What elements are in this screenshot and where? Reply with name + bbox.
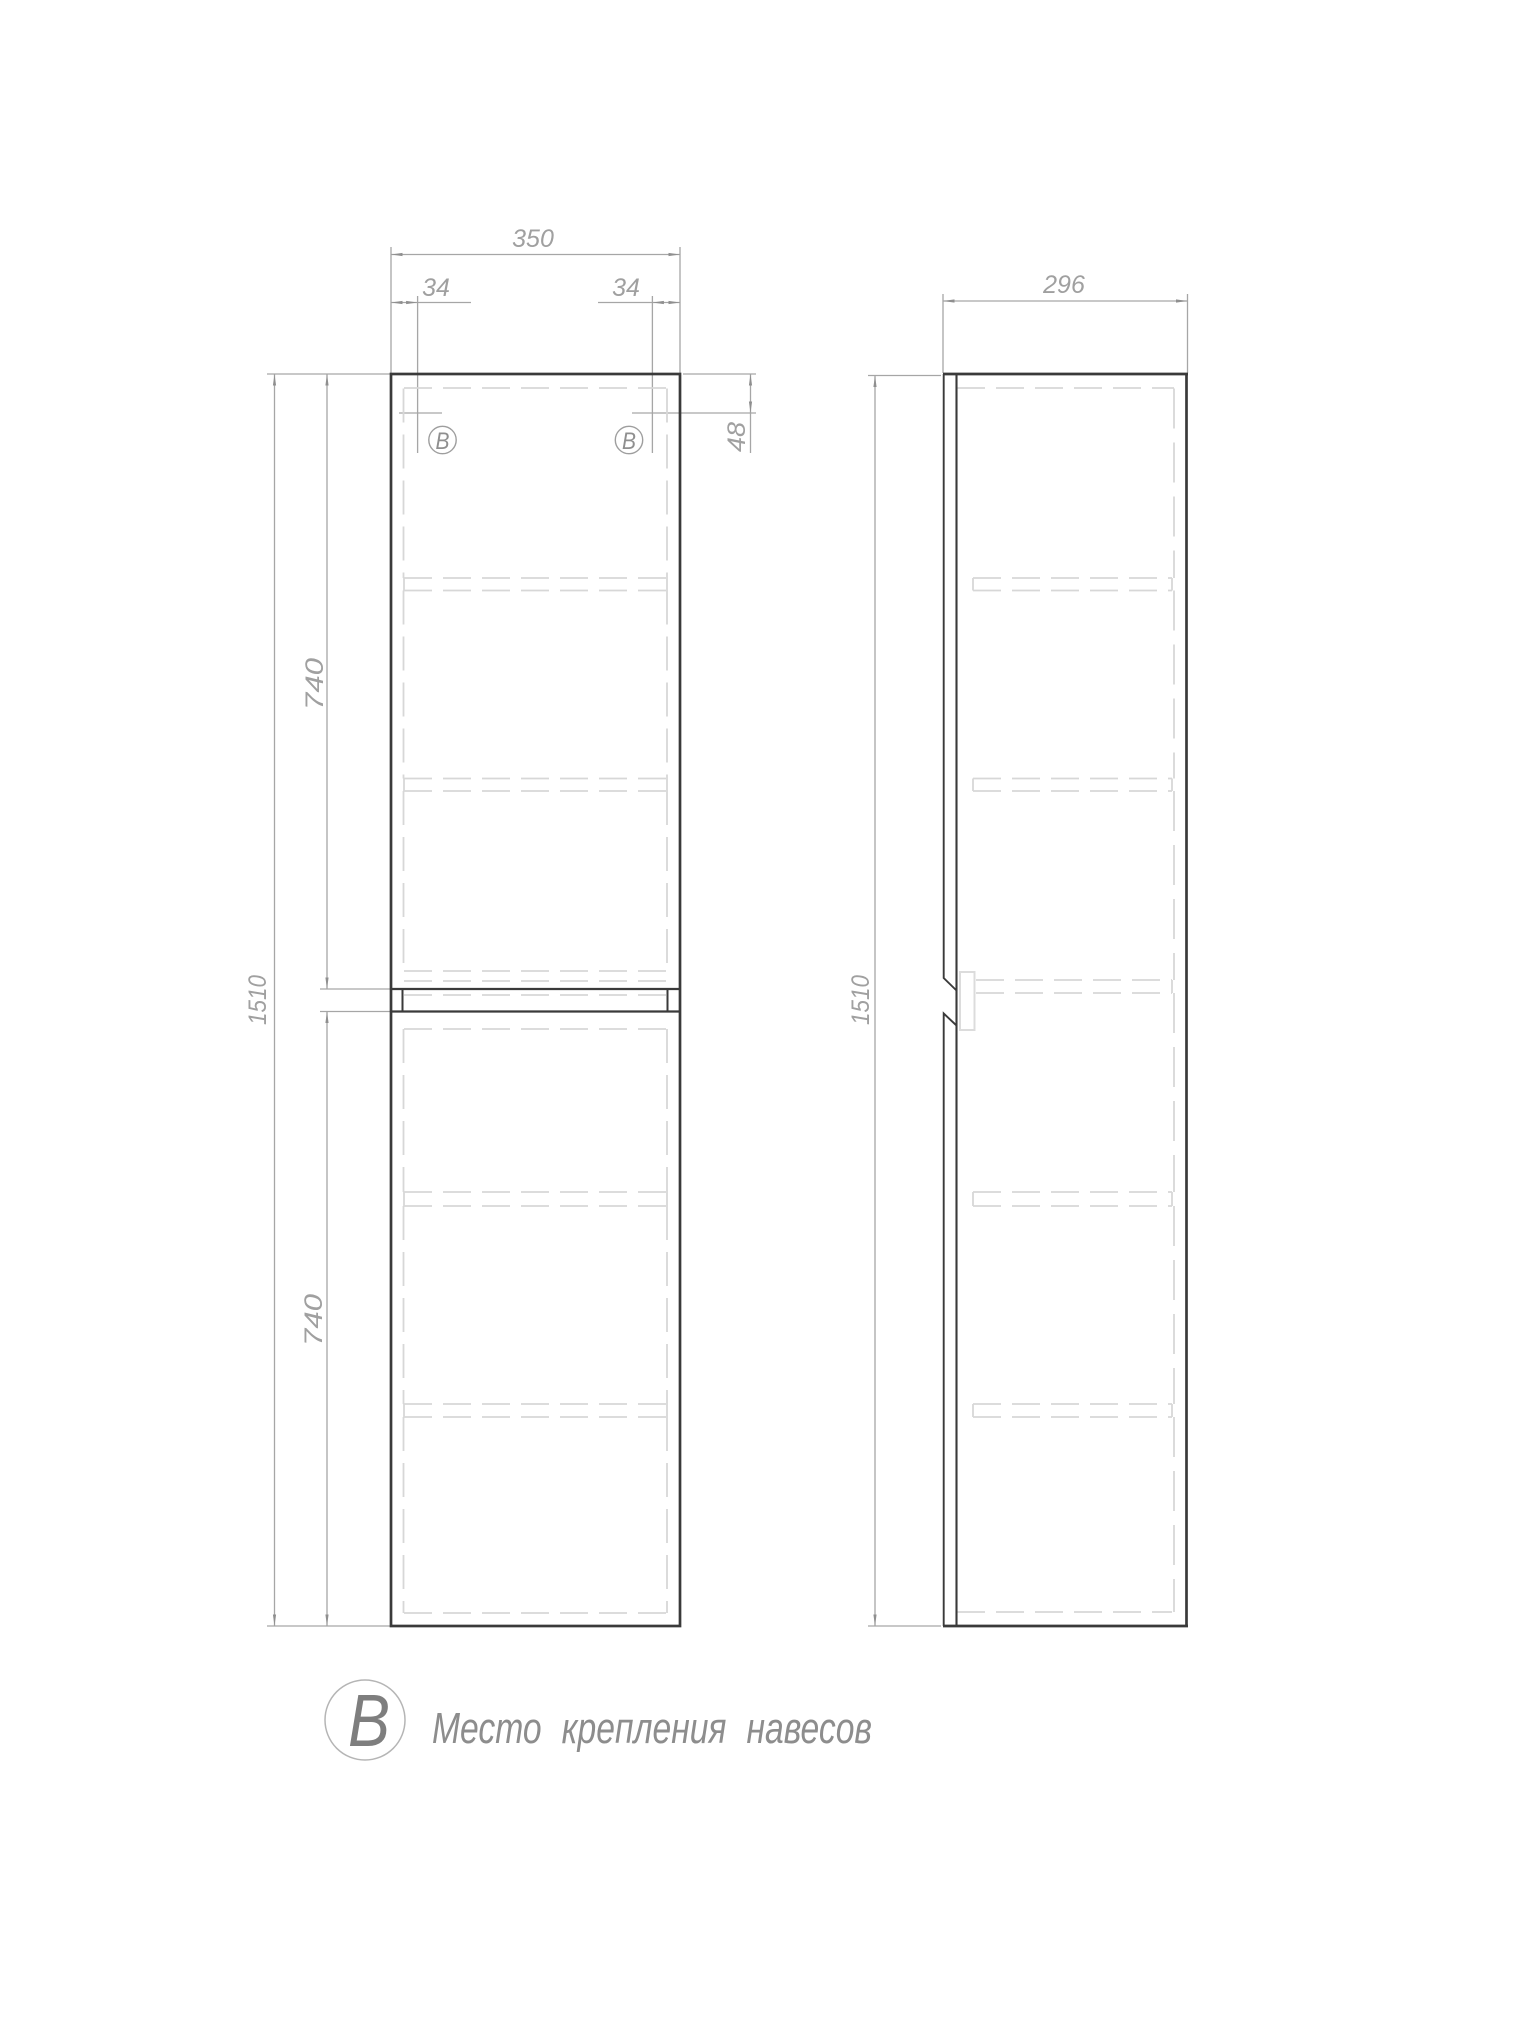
svg-text:350: 350 bbox=[512, 225, 554, 253]
svg-text:48: 48 bbox=[723, 422, 751, 452]
svg-text:Место крепления навесов: Место крепления навесов bbox=[432, 1704, 872, 1753]
svg-text:В: В bbox=[622, 428, 636, 455]
svg-text:34: 34 bbox=[422, 274, 450, 302]
svg-text:1510: 1510 bbox=[847, 975, 875, 1025]
svg-text:296: 296 bbox=[1042, 271, 1085, 299]
svg-text:В: В bbox=[436, 428, 450, 455]
svg-text:740: 740 bbox=[301, 658, 329, 710]
svg-text:34: 34 bbox=[612, 274, 640, 302]
svg-text:740: 740 bbox=[300, 1294, 328, 1346]
svg-text:В: В bbox=[348, 1679, 390, 1762]
svg-text:1510: 1510 bbox=[244, 975, 272, 1025]
